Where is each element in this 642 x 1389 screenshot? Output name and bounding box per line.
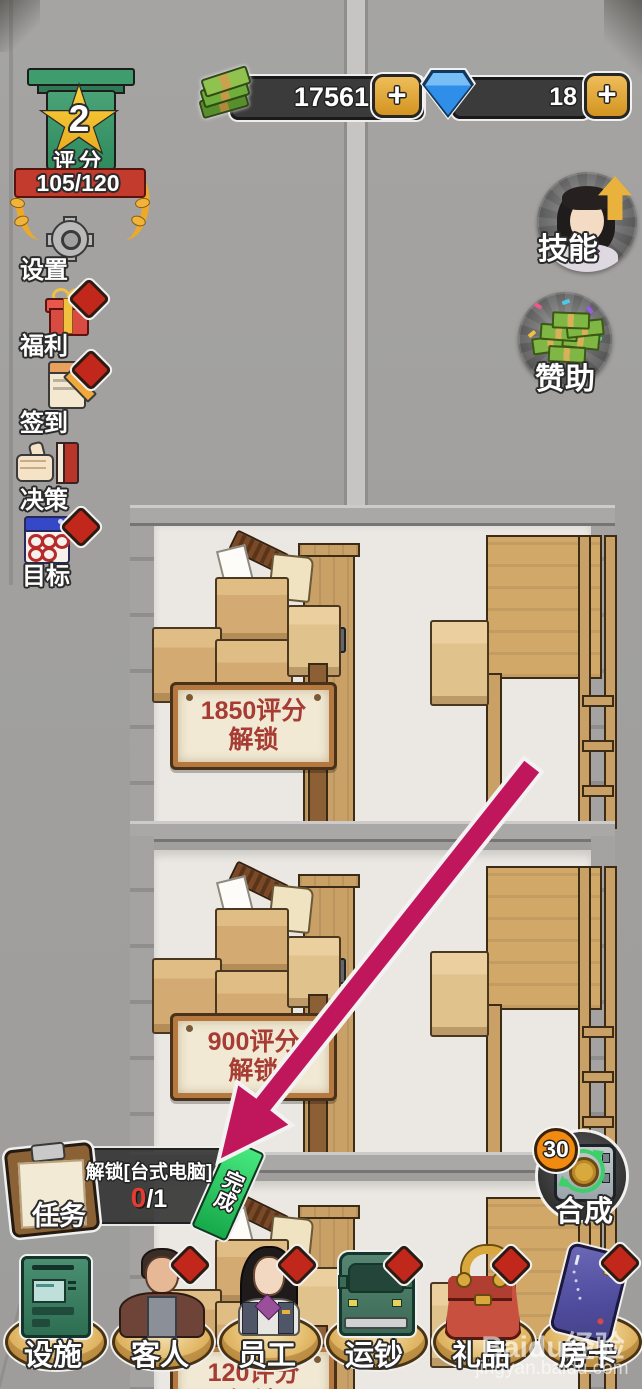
bottom-item-label: 设施 <box>0 1332 108 1374</box>
ladder-rung <box>582 1116 614 1128</box>
game-screen: 1850评分 解锁 <box>0 0 642 1389</box>
rating-level: 2 <box>37 98 121 140</box>
sign-score-line: 1850评分 <box>178 690 329 727</box>
plus-icon: + <box>387 76 406 113</box>
cardboard-box <box>430 951 489 1037</box>
task-progress-current: 0 <box>131 1182 147 1213</box>
ceiling-slab <box>130 505 615 526</box>
wood-column-cap <box>298 543 360 557</box>
diamond-add-button[interactable]: + <box>584 73 630 119</box>
sidebar-label: 决策 <box>20 480 68 515</box>
wood-column-cap <box>298 874 360 888</box>
sidebar-item-welfare[interactable]: 福利 <box>14 284 100 354</box>
sidebar-item-decision[interactable]: 决策 <box>14 440 100 510</box>
money-pile-icon <box>552 311 591 329</box>
unlock-sign: 1850评分 解锁 <box>170 682 337 770</box>
ladder-rung <box>582 695 614 707</box>
sidebar-label: 设置 <box>20 250 68 285</box>
sidebar-label: 目标 <box>22 556 70 591</box>
sidebar-label: 签到 <box>20 403 68 438</box>
concrete-column-left <box>130 836 154 1167</box>
scene-room-2: 900评分 解锁 <box>130 836 615 1167</box>
synthesis-label: 合成 <box>546 1188 622 1230</box>
bottom-item-label: 员工 <box>212 1332 322 1374</box>
money-add-button[interactable]: + <box>372 74 422 118</box>
corner-shadow <box>0 0 40 52</box>
diamond-value: 18 <box>549 83 577 112</box>
bottom-item-guest[interactable]: 客人 <box>107 1240 214 1389</box>
synthesis-badge: 30 <box>534 1128 578 1172</box>
task-label: 任务 <box>24 1194 94 1233</box>
ladder-rung <box>582 785 614 797</box>
concrete-column-left <box>130 505 154 836</box>
plus-icon: + <box>597 75 616 112</box>
sign-unlock-line: 解锁 <box>178 727 329 755</box>
rating-score: 105/120 <box>14 170 142 197</box>
bottom-item-label: 运钞 <box>319 1332 429 1374</box>
watermark-url: jingyan.baidu.com <box>462 1358 642 1380</box>
sidebar-item-goal[interactable]: 目标 <box>14 512 100 586</box>
task-title: 解锁[台式电脑] <box>64 1157 234 1184</box>
synthesis-badge-count: 30 <box>537 1131 575 1167</box>
cardboard-box <box>215 908 289 974</box>
bottom-item-staff[interactable]: 员工 <box>214 1240 321 1389</box>
sign-unlock-line: 解锁 <box>178 1058 329 1086</box>
scene-room-1: 1850评分 解锁 <box>130 505 615 836</box>
sidebar-item-settings[interactable]: 设置 <box>14 214 100 280</box>
task-progress-total: /1 <box>146 1185 167 1213</box>
sponsor-label: 赞助 <box>527 354 603 398</box>
atm-icon <box>21 1256 91 1338</box>
sidebar-item-checkin[interactable]: 签到 <box>14 355 100 435</box>
cardboard-box <box>430 620 489 706</box>
unlock-sign: 900评分 解锁 <box>170 1013 337 1101</box>
skill-label: 技能 <box>530 224 606 268</box>
bottom-item-facility[interactable]: 设施 <box>0 1240 107 1389</box>
bottom-item-cash-truck[interactable]: 运钞 <box>321 1240 428 1389</box>
ladder-rung <box>582 1026 614 1038</box>
ladder-rung <box>582 740 614 752</box>
corner-shadow <box>604 0 642 74</box>
wood-column-cap <box>298 1205 360 1219</box>
cash-bundle-icon <box>196 68 252 120</box>
sign-score-line: 900评分 <box>178 1021 329 1058</box>
ladder-rung <box>582 1071 614 1083</box>
rating-badge[interactable]: 2 评分 105/120 <box>10 58 148 198</box>
bottom-item-label: 客人 <box>105 1332 215 1374</box>
money-value: 17561 <box>294 82 369 113</box>
gem-icon <box>420 68 476 120</box>
cardboard-box <box>215 577 289 643</box>
